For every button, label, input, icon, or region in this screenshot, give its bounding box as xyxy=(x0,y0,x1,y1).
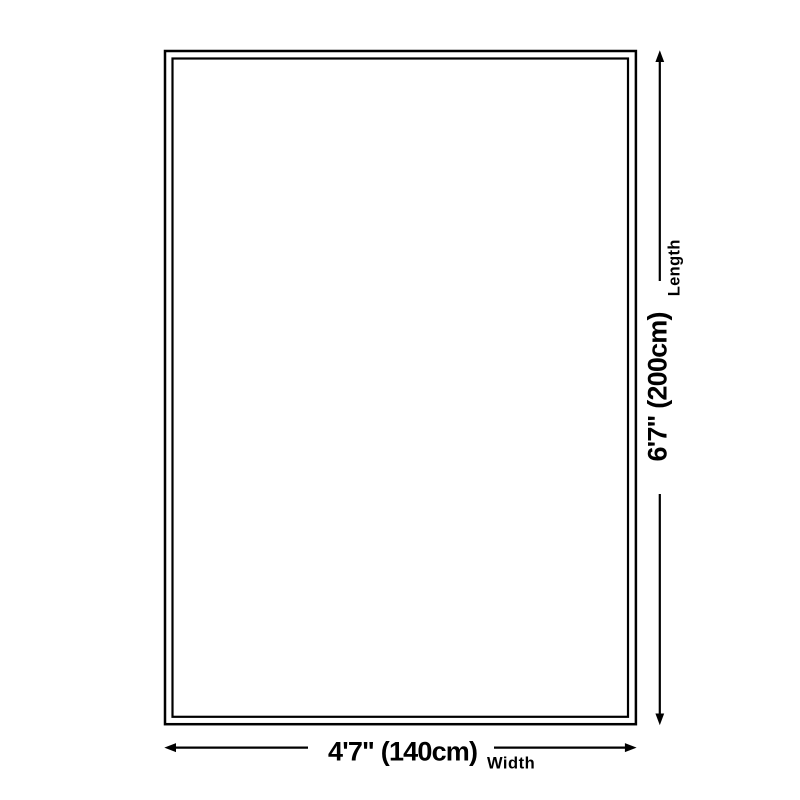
svg-text:4'7" (140cm): 4'7" (140cm) xyxy=(328,737,477,767)
svg-text:Length: Length xyxy=(665,239,683,296)
svg-text:6'7" (200cm): 6'7" (200cm) xyxy=(643,312,673,461)
svg-text:Width: Width xyxy=(487,755,535,773)
